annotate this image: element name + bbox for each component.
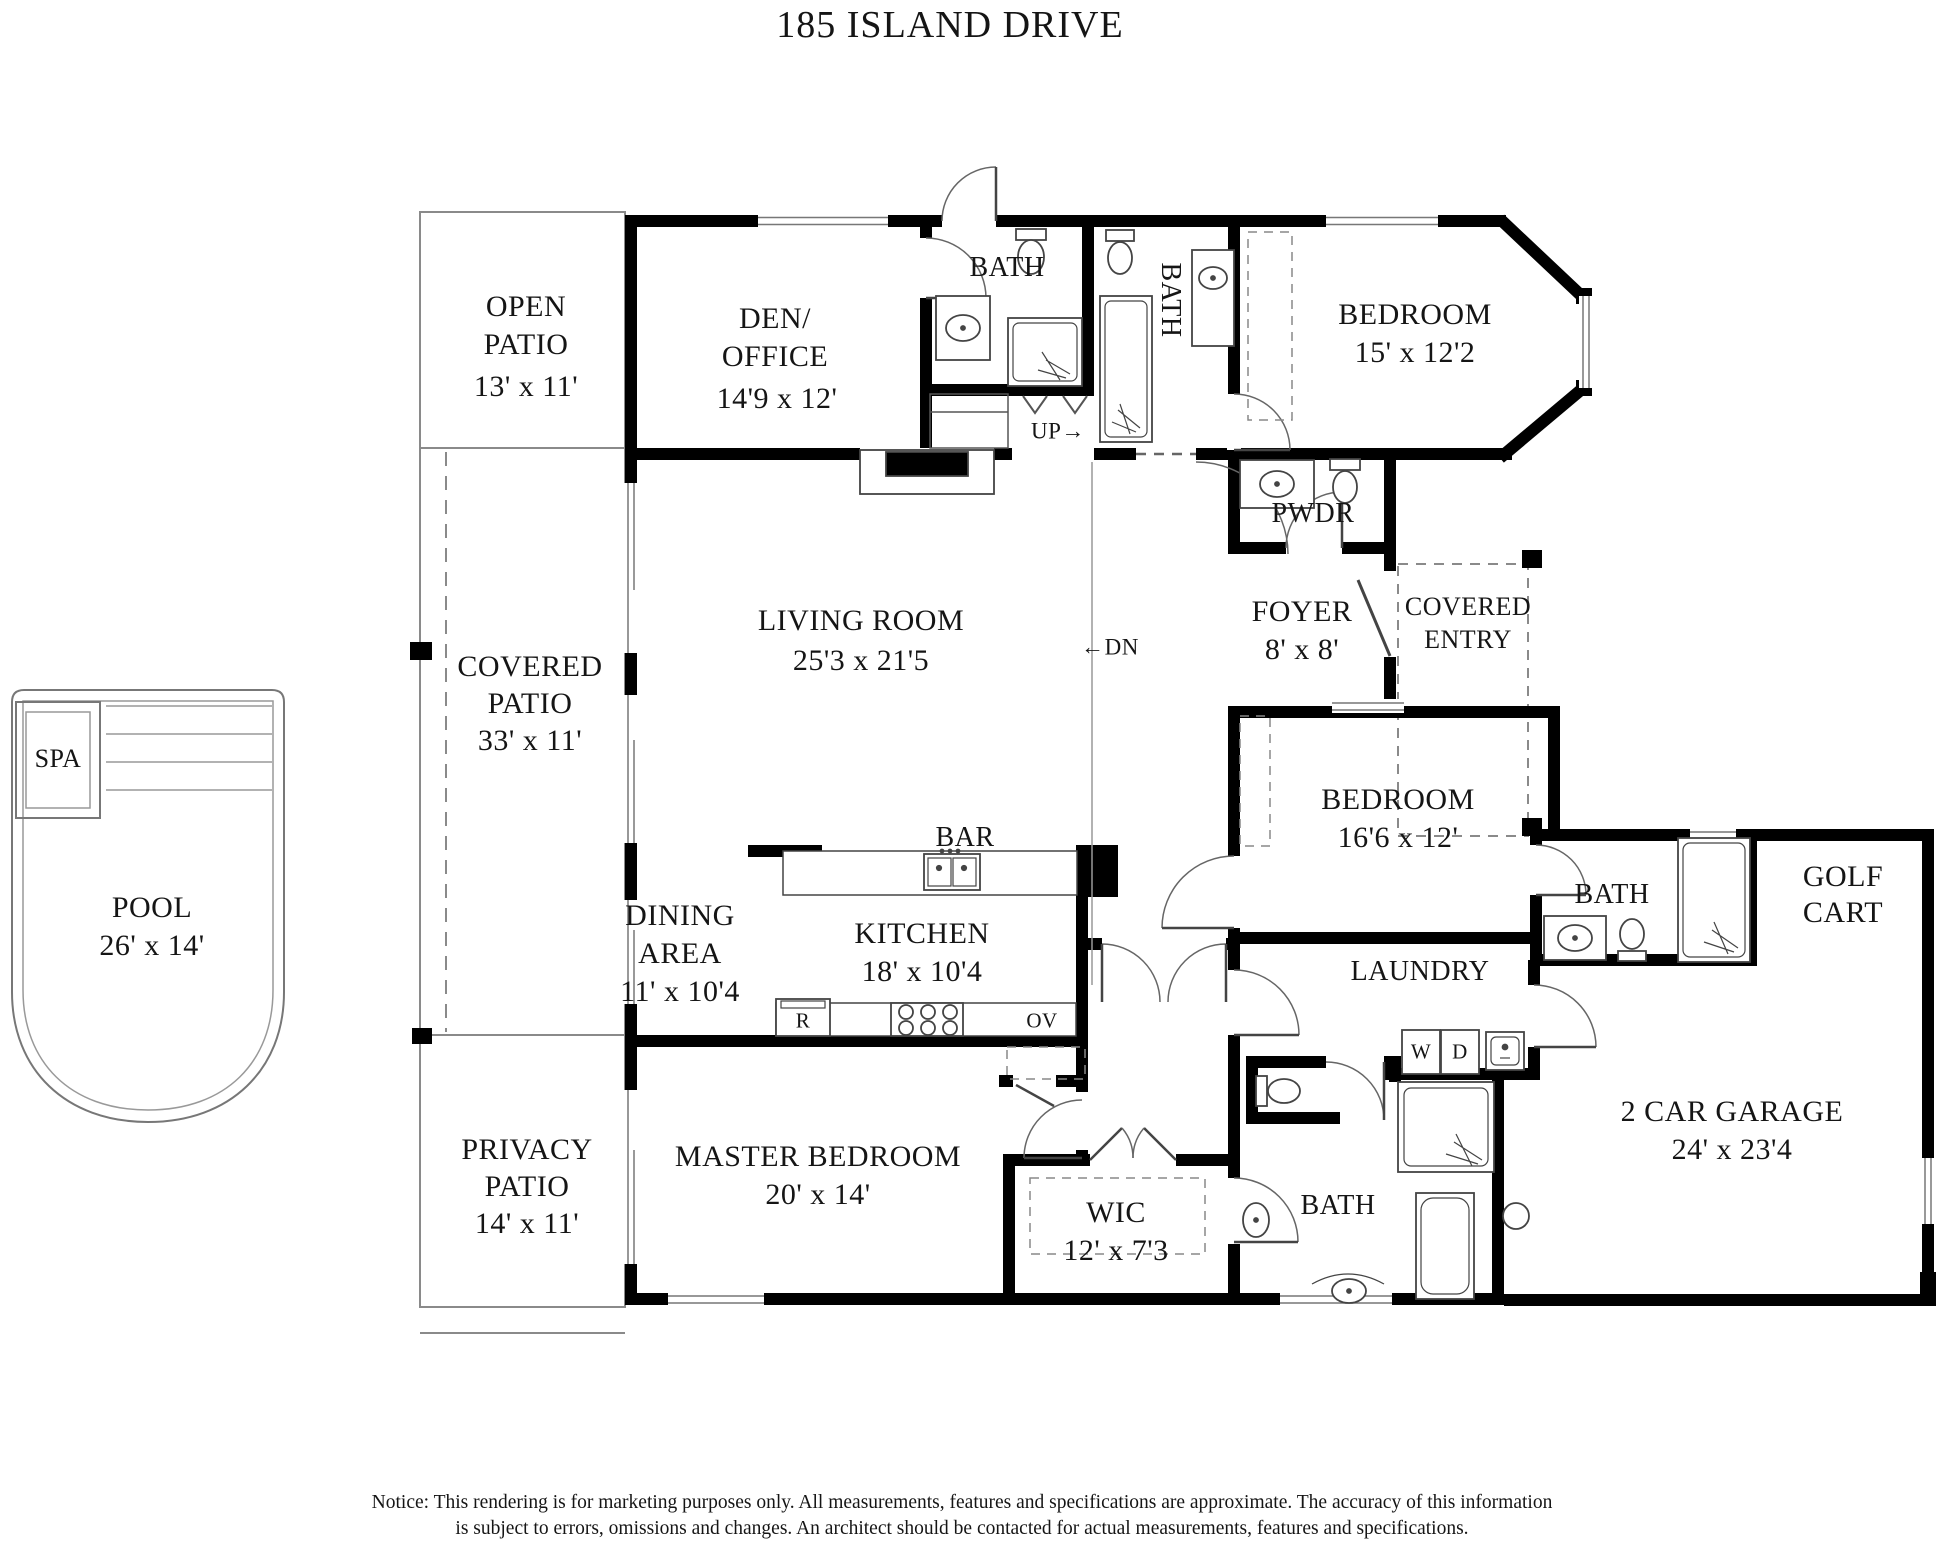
master-bedroom-name: MASTER BEDROOM — [675, 1142, 961, 1172]
door-toilet-room — [1326, 1062, 1384, 1120]
wic-double-doors — [1090, 1128, 1176, 1160]
dining-area-dims: 11' x 10'4 — [620, 977, 740, 1007]
pantry-stub — [1056, 1075, 1086, 1087]
laundry-name: LAUNDRY — [1351, 958, 1490, 986]
door-bedroom2 — [1162, 856, 1234, 928]
covered-patio-name-2: PATIO — [488, 689, 573, 719]
wic-dims: 12' x 7'3 — [1063, 1236, 1168, 1266]
privacy-patio-name-2: PATIO — [485, 1172, 570, 1202]
covered-entry-name-2: ENTRY — [1424, 627, 1512, 653]
den-office-name-1: DEN/ — [739, 304, 811, 334]
pantry-stub — [999, 1075, 1013, 1087]
covered-entry-name-1: COVERED — [1405, 594, 1531, 620]
disclaimer-notice: Notice: This rendering is for marketing … — [292, 1490, 1632, 1542]
den-office-dims: 14'9 x 12' — [717, 384, 838, 414]
open-patio-name-2: PATIO — [484, 330, 569, 360]
door-top-exterior — [942, 167, 996, 228]
dining-area-name-1: DINING — [625, 901, 735, 931]
shower-icon — [1678, 838, 1750, 962]
pool-name: POOL — [112, 893, 192, 923]
stove-icon — [891, 1003, 963, 1036]
bath-3-name: BATH — [1574, 881, 1649, 909]
front-door — [1358, 571, 1397, 657]
golf-cart-name-2: CART — [1803, 898, 1883, 928]
foyer-dims: 8' x 8' — [1265, 635, 1339, 665]
stair-chevron — [1023, 396, 1047, 413]
bath-1-name: BATH — [969, 254, 1044, 282]
dining-area-name-2: AREA — [638, 939, 722, 969]
floor-plan-page: 185 ISLAND DRIVE — [0, 0, 1942, 1536]
master-bedroom-dims: 20' x 14' — [765, 1180, 870, 1210]
slider-living-2 — [624, 695, 638, 843]
toilet-icon — [1256, 1076, 1300, 1106]
bar-counter — [783, 850, 1077, 896]
sink-icon — [1544, 916, 1606, 960]
bedroom-1-dims: 15' x 12'2 — [1355, 338, 1476, 368]
sink-icon — [1243, 1203, 1269, 1237]
floor-plan-drawing — [0, 0, 1942, 1536]
door-bedroom1 — [1227, 394, 1290, 450]
laundry-sink-icon — [1486, 1032, 1524, 1070]
up-label: UP→ — [1031, 420, 1085, 443]
stair-chevron — [1063, 396, 1087, 413]
pwdr-name: PWDR — [1272, 500, 1355, 528]
toilet-icon — [1330, 459, 1360, 503]
shower-icon — [1100, 296, 1152, 442]
bedroom1-closet — [1248, 232, 1292, 420]
dryer-label: D — [1452, 1042, 1468, 1063]
covered-patio-dims: 33' x 11' — [478, 726, 582, 756]
bath-2-name: BATH — [1156, 262, 1184, 337]
living-room-dims: 25'3 x 21'5 — [793, 646, 929, 676]
slider-living — [624, 483, 638, 653]
door-laundry-garage — [1534, 985, 1596, 1047]
fireplace-icon — [860, 450, 994, 494]
slider-master — [624, 1090, 638, 1264]
dn-label: ←DN — [1081, 636, 1139, 659]
toilet-icon — [1618, 919, 1646, 961]
hall-double-doors — [1102, 944, 1226, 1002]
living-room-name: LIVING ROOM — [758, 606, 964, 636]
range-label: R — [796, 1011, 811, 1032]
window-garage-right — [1921, 1158, 1935, 1224]
column-icon — [1503, 1203, 1529, 1229]
toilet-icon — [1106, 230, 1134, 274]
oven-label: OV — [1026, 1011, 1057, 1032]
bedroom-2-dims: 16'6 x 12' — [1338, 823, 1459, 853]
den-office-name-2: OFFICE — [722, 342, 828, 372]
disclaimer-line-2: is subject to errors, omissions and chan… — [292, 1516, 1632, 1542]
bedroom-2-name: BEDROOM — [1321, 785, 1475, 815]
bar-name: BAR — [935, 824, 994, 852]
bedroom-1-name: BEDROOM — [1338, 300, 1492, 330]
washer-label: W — [1411, 1042, 1431, 1063]
pool-dims: 26' x 14' — [99, 931, 204, 961]
tub-icon — [1416, 1193, 1474, 1299]
covered-patio-name-1: COVERED — [457, 652, 602, 682]
open-patio-name-1: OPEN — [486, 292, 566, 322]
hall-closet — [930, 394, 1008, 448]
wic-name: WIC — [1086, 1198, 1146, 1228]
bedroom2-closet — [1240, 716, 1270, 846]
shower-icon — [1008, 318, 1082, 386]
pantry-dashed — [1007, 1047, 1085, 1079]
window-bedroom1-top — [1326, 213, 1438, 229]
window-bedroom2-top — [1332, 699, 1404, 713]
open-patio-dims: 13' x 11' — [474, 372, 578, 402]
door-master — [1024, 1100, 1082, 1158]
foyer-name: FOYER — [1252, 597, 1353, 627]
window-den-top — [758, 213, 888, 229]
window-bay — [1579, 296, 1593, 388]
privacy-patio-dims: 14' x 11' — [475, 1209, 579, 1239]
sink-icon — [1192, 250, 1234, 346]
garage-corner-block — [1920, 1272, 1936, 1306]
garage-dims: 24' x 23'4 — [1672, 1135, 1793, 1165]
pool-steps — [106, 706, 272, 790]
sink-icon — [936, 296, 990, 360]
garage-name: 2 CAR GARAGE — [1621, 1097, 1844, 1127]
disclaimer-line-1: Notice: This rendering is for marketing … — [292, 1490, 1632, 1516]
window-master-bottom — [668, 1292, 764, 1306]
door-laundry — [1234, 970, 1299, 1035]
privacy-patio-name-1: PRIVACY — [461, 1135, 592, 1165]
door-pantry — [1016, 1085, 1054, 1106]
kitchen-dims: 18' x 10'4 — [862, 957, 983, 987]
bath-4-name: BATH — [1300, 1192, 1375, 1220]
kitchen-name: KITCHEN — [854, 919, 989, 949]
golf-cart-name-1: GOLF — [1803, 862, 1883, 892]
spa-name: SPA — [35, 746, 82, 772]
shower-icon — [1398, 1082, 1494, 1172]
entry-post — [1522, 550, 1542, 568]
